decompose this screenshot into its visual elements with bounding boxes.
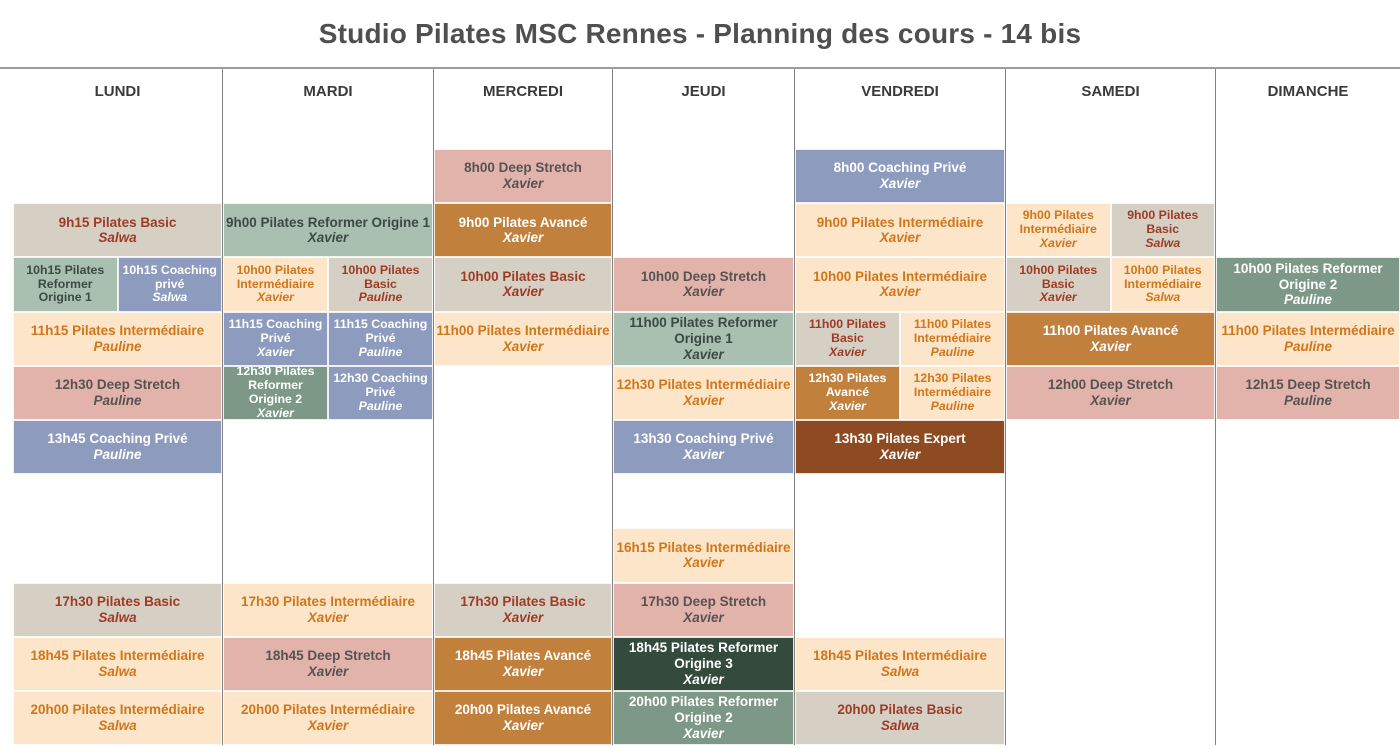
class-title: 20h00 Pilates Intermédiaire <box>241 702 415 718</box>
instructor-name: Xavier <box>1040 291 1077 305</box>
day-header-samedi: SAMEDI <box>1006 69 1215 149</box>
planning-page: Studio Pilates MSC Rennes - Planning des… <box>0 0 1400 747</box>
day-column-vendredi: VENDREDI8h00 Coaching PrivéXavier9h00 Pi… <box>795 69 1006 745</box>
instructor-name: Salwa <box>98 610 136 626</box>
class-title: 8h00 Deep Stretch <box>464 160 582 176</box>
instructor-name: Salwa <box>152 291 187 305</box>
class-block-18h45: 18h45 Pilates Reformer Origine 3Xavier <box>613 637 794 691</box>
class-block-20h00: 20h00 Pilates IntermédiaireXavier <box>223 691 433 745</box>
instructor-name: Xavier <box>503 176 544 192</box>
instructor-name: Xavier <box>503 284 544 300</box>
class-block-12h30: 12h30 Pilates Reformer Origine 2Xavier <box>223 366 328 420</box>
class-block-9h15: 9h15 Pilates BasicSalwa <box>13 203 222 257</box>
class-title: 17h30 Deep Stretch <box>641 594 766 610</box>
instructor-name: Salwa <box>98 230 136 246</box>
class-title: 11h00 Pilates Intermédiaire <box>902 318 1003 346</box>
planning-grid: LUNDI9h15 Pilates BasicSalwa10h15 Pilate… <box>13 69 1400 745</box>
instructor-name: Salwa <box>98 718 136 734</box>
day-slots: 9h00 Pilates Reformer Origine 1Xavier10h… <box>223 149 433 745</box>
instructor-name: Pauline <box>359 346 403 360</box>
class-block-10h00: 10h00 Pilates BasicXavier <box>434 257 612 311</box>
class-block-13h30: 13h30 Coaching PrivéXavier <box>613 420 794 474</box>
page-header: Studio Pilates MSC Rennes - Planning des… <box>0 0 1400 69</box>
class-block-12h30: 12h30 Pilates IntermédiairePauline <box>900 366 1005 420</box>
day-column-jeudi: JEUDI10h00 Deep StretchXavier11h00 Pilat… <box>613 69 795 745</box>
class-title: 10h00 Deep Stretch <box>641 269 766 285</box>
class-block-12h30: 12h30 Pilates AvancéXavier <box>795 366 900 420</box>
instructor-name: Pauline <box>931 346 975 360</box>
class-title: 13h30 Coaching Privé <box>633 431 773 447</box>
instructor-name: Pauline <box>359 291 403 305</box>
class-title: 11h00 Pilates Intermédiaire <box>1221 323 1394 339</box>
instructor-name: Xavier <box>1040 237 1077 251</box>
instructor-name: Xavier <box>308 230 349 246</box>
class-block-9h00: 9h00 Pilates AvancéXavier <box>434 203 612 257</box>
class-title: 11h15 Coaching Privé <box>225 318 326 346</box>
class-title: 12h30 Pilates Intermédiaire <box>902 372 1003 400</box>
class-title: 20h00 Pilates Reformer Origine 2 <box>615 694 792 726</box>
class-block-11h15: 11h15 Coaching PrivéXavier <box>223 312 328 366</box>
instructor-name: Xavier <box>503 339 544 355</box>
day-slots: 9h15 Pilates BasicSalwa10h15 Pilates Ref… <box>13 149 222 745</box>
class-block-10h00: 10h00 Pilates IntermédiaireXavier <box>795 257 1005 311</box>
class-title: 18h45 Pilates Intermédiaire <box>813 648 987 664</box>
instructor-name: Xavier <box>880 284 921 300</box>
class-title: 11h00 Pilates Avancé <box>1043 323 1179 339</box>
class-block-9h00: 9h00 Pilates IntermédiaireXavier <box>795 203 1005 257</box>
instructor-name: Salwa <box>1145 291 1180 305</box>
class-block-9h00: 9h00 Pilates BasicSalwa <box>1111 203 1216 257</box>
class-title: 12h30 Pilates Reformer Origine 2 <box>225 366 326 407</box>
instructor-name: Xavier <box>308 610 349 626</box>
class-block-20h00: 20h00 Pilates AvancéXavier <box>434 691 612 745</box>
class-block-17h30: 17h30 Pilates IntermédiaireXavier <box>223 583 433 637</box>
class-block-11h00: 11h00 Pilates Reformer Origine 1Xavier <box>613 312 794 366</box>
class-title: 20h00 Pilates Intermédiaire <box>30 702 204 718</box>
class-block-12h30: 12h30 Pilates IntermédiaireXavier <box>613 366 794 420</box>
class-block-12h30: 12h30 Coaching PrivéPauline <box>328 366 433 420</box>
class-title: 9h00 Pilates Reformer Origine 1 <box>226 215 430 231</box>
instructor-name: Xavier <box>880 230 921 246</box>
day-header-mardi: MARDI <box>223 69 433 149</box>
class-title: 10h00 Pilates Basic <box>460 269 585 285</box>
class-title: 17h30 Pilates Intermédiaire <box>241 594 415 610</box>
class-title: 10h00 Pilates Intermédiaire <box>225 264 326 292</box>
day-slots: 8h00 Coaching PrivéXavier9h00 Pilates In… <box>795 149 1005 745</box>
day-column-mardi: MARDI9h00 Pilates Reformer Origine 1Xavi… <box>223 69 434 745</box>
class-title: 11h00 Pilates Basic <box>797 318 898 346</box>
day-header-jeudi: JEUDI <box>613 69 794 149</box>
class-block-10h00: 10h00 Deep StretchXavier <box>613 257 794 311</box>
instructor-name: Xavier <box>829 346 866 360</box>
class-title: 12h30 Pilates Intermédiaire <box>616 377 790 393</box>
class-title: 16h15 Pilates Intermédiaire <box>616 540 790 556</box>
class-block-10h15: 10h15 Coaching privéSalwa <box>118 257 223 311</box>
instructor-name: Xavier <box>308 718 349 734</box>
instructor-name: Xavier <box>503 610 544 626</box>
class-title: 9h00 Pilates Avancé <box>459 215 588 231</box>
day-slots: 9h00 Pilates IntermédiaireXavier9h00 Pil… <box>1006 149 1215 745</box>
class-block-11h15: 11h15 Coaching PrivéPauline <box>328 312 433 366</box>
class-block-11h00: 11h00 Pilates AvancéXavier <box>1006 312 1215 366</box>
class-block-17h30: 17h30 Pilates BasicSalwa <box>13 583 222 637</box>
class-title: 10h00 Pilates Intermédiaire <box>1113 264 1214 292</box>
instructor-name: Pauline <box>1284 393 1332 409</box>
class-block-20h00: 20h00 Pilates IntermédiaireSalwa <box>13 691 222 745</box>
instructor-name: Xavier <box>503 230 544 246</box>
class-title: 10h15 Coaching privé <box>120 264 221 292</box>
instructor-name: Pauline <box>1284 339 1332 355</box>
class-block-13h45: 13h45 Coaching PrivéPauline <box>13 420 222 474</box>
instructor-name: Xavier <box>503 718 544 734</box>
instructor-name: Xavier <box>503 664 544 680</box>
class-title: 8h00 Coaching Privé <box>834 160 967 176</box>
class-block-10h00: 10h00 Pilates BasicXavier <box>1006 257 1111 311</box>
class-title: 18h45 Pilates Avancé <box>455 648 591 664</box>
class-block-9h00: 9h00 Pilates Reformer Origine 1Xavier <box>223 203 433 257</box>
class-block-17h30: 17h30 Pilates BasicXavier <box>434 583 612 637</box>
instructor-name: Pauline <box>931 400 975 414</box>
class-title: 12h00 Deep Stretch <box>1048 377 1173 393</box>
class-block-8h00: 8h00 Deep StretchXavier <box>434 149 612 203</box>
class-title: 18h45 Deep Stretch <box>265 648 390 664</box>
day-slots: 10h00 Pilates Reformer Origine 2Pauline1… <box>1216 149 1400 745</box>
instructor-name: Xavier <box>1090 393 1131 409</box>
day-header-vendredi: VENDREDI <box>795 69 1005 149</box>
class-block-11h00: 11h00 Pilates IntermédiairePauline <box>1216 312 1400 366</box>
class-block-11h00: 11h00 Pilates IntermédiaireXavier <box>434 312 612 366</box>
instructor-name: Xavier <box>683 284 724 300</box>
class-block-10h00: 10h00 Pilates BasicPauline <box>328 257 433 311</box>
instructor-name: Xavier <box>683 555 724 571</box>
page-title: Studio Pilates MSC Rennes - Planning des… <box>319 18 1082 50</box>
class-title: 9h15 Pilates Basic <box>59 215 177 231</box>
instructor-name: Salwa <box>881 664 919 680</box>
day-header-mercredi: MERCREDI <box>434 69 612 149</box>
instructor-name: Pauline <box>1284 292 1332 308</box>
class-block-10h15: 10h15 Pilates Reformer Origine 1 <box>13 257 118 311</box>
class-block-10h00: 10h00 Pilates IntermédiaireXavier <box>223 257 328 311</box>
day-slots: 8h00 Deep StretchXavier9h00 Pilates Avan… <box>434 149 612 745</box>
day-column-lundi: LUNDI9h15 Pilates BasicSalwa10h15 Pilate… <box>13 69 223 745</box>
class-title: 12h30 Pilates Avancé <box>797 372 898 400</box>
class-title: 9h00 Pilates Intermédiaire <box>817 215 984 231</box>
class-block-11h00: 11h00 Pilates BasicXavier <box>795 312 900 366</box>
class-title: 10h00 Pilates Basic <box>1008 264 1109 292</box>
instructor-name: Pauline <box>93 393 141 409</box>
class-block-20h00: 20h00 Pilates Reformer Origine 2Xavier <box>613 691 794 745</box>
class-block-13h30: 13h30 Pilates ExpertXavier <box>795 420 1005 474</box>
instructor-name: Xavier <box>683 610 724 626</box>
class-block-18h45: 18h45 Pilates AvancéXavier <box>434 637 612 691</box>
class-block-10h00: 10h00 Pilates Reformer Origine 2Pauline <box>1216 257 1400 311</box>
class-block-18h45: 18h45 Pilates IntermédiaireSalwa <box>13 637 222 691</box>
instructor-name: Xavier <box>683 726 724 742</box>
instructor-name: Xavier <box>257 291 294 305</box>
class-block-11h15: 11h15 Pilates IntermédiairePauline <box>13 312 222 366</box>
class-block-9h00: 9h00 Pilates IntermédiaireXavier <box>1006 203 1111 257</box>
class-title: 11h15 Coaching Privé <box>330 318 431 346</box>
class-block-18h45: 18h45 Pilates IntermédiaireSalwa <box>795 637 1005 691</box>
class-title: 13h45 Coaching Privé <box>47 431 187 447</box>
class-title: 9h00 Pilates Intermédiaire <box>1008 209 1109 237</box>
class-title: 18h45 Pilates Intermédiaire <box>30 648 204 664</box>
class-title: 20h00 Pilates Basic <box>837 702 962 718</box>
class-block-12h00: 12h00 Deep StretchXavier <box>1006 366 1215 420</box>
instructor-name: Salwa <box>1145 237 1180 251</box>
class-title: 17h30 Pilates Basic <box>55 594 180 610</box>
class-title: 18h45 Pilates Reformer Origine 3 <box>615 640 792 672</box>
instructor-name: Xavier <box>683 347 724 363</box>
class-title: 10h00 Pilates Intermédiaire <box>813 269 987 285</box>
day-header-lundi: LUNDI <box>13 69 222 149</box>
class-title: 12h30 Coaching Privé <box>330 372 431 400</box>
class-title: 12h15 Deep Stretch <box>1245 377 1370 393</box>
day-header-dimanche: DIMANCHE <box>1216 69 1400 149</box>
instructor-name: Xavier <box>683 447 724 463</box>
day-column-dimanche: DIMANCHE10h00 Pilates Reformer Origine 2… <box>1216 69 1400 745</box>
class-block-17h30: 17h30 Deep StretchXavier <box>613 583 794 637</box>
class-title: 20h00 Pilates Avancé <box>455 702 591 718</box>
instructor-name: Xavier <box>308 664 349 680</box>
class-title: 10h00 Pilates Basic <box>330 264 431 292</box>
day-column-mercredi: MERCREDI8h00 Deep StretchXavier9h00 Pila… <box>434 69 613 745</box>
class-title: 17h30 Pilates Basic <box>460 594 585 610</box>
class-title: 12h30 Deep Stretch <box>55 377 180 393</box>
instructor-name: Xavier <box>880 176 921 192</box>
class-title: 10h00 Pilates Reformer Origine 2 <box>1218 261 1398 293</box>
instructor-name: Xavier <box>683 672 724 688</box>
class-block-11h00: 11h00 Pilates IntermédiairePauline <box>900 312 1005 366</box>
instructor-name: Xavier <box>257 346 294 360</box>
instructor-name: Xavier <box>829 400 866 414</box>
class-title: 11h00 Pilates Reformer Origine 1 <box>615 315 792 347</box>
class-title: 10h15 Pilates Reformer Origine 1 <box>15 264 116 306</box>
instructor-name: Pauline <box>93 339 141 355</box>
class-block-8h00: 8h00 Coaching PrivéXavier <box>795 149 1005 203</box>
class-title: 11h00 Pilates Intermédiaire <box>436 323 609 339</box>
instructor-name: Xavier <box>683 393 724 409</box>
instructor-name: Pauline <box>359 400 403 414</box>
day-column-samedi: SAMEDI9h00 Pilates IntermédiaireXavier9h… <box>1006 69 1216 745</box>
class-block-12h15: 12h15 Deep StretchPauline <box>1216 366 1400 420</box>
class-title: 9h00 Pilates Basic <box>1113 209 1214 237</box>
instructor-name: Salwa <box>98 664 136 680</box>
instructor-name: Xavier <box>1090 339 1131 355</box>
class-title: 13h30 Pilates Expert <box>834 431 965 447</box>
instructor-name: Xavier <box>880 447 921 463</box>
class-title: 11h15 Pilates Intermédiaire <box>31 323 204 339</box>
instructor-name: Xavier <box>257 407 294 420</box>
class-block-10h00: 10h00 Pilates IntermédiaireSalwa <box>1111 257 1216 311</box>
instructor-name: Pauline <box>93 447 141 463</box>
class-block-16h15: 16h15 Pilates IntermédiaireXavier <box>613 528 794 582</box>
class-block-18h45: 18h45 Deep StretchXavier <box>223 637 433 691</box>
class-block-20h00: 20h00 Pilates BasicSalwa <box>795 691 1005 745</box>
class-block-12h30: 12h30 Deep StretchPauline <box>13 366 222 420</box>
instructor-name: Salwa <box>881 718 919 734</box>
day-slots: 10h00 Deep StretchXavier11h00 Pilates Re… <box>613 149 794 745</box>
